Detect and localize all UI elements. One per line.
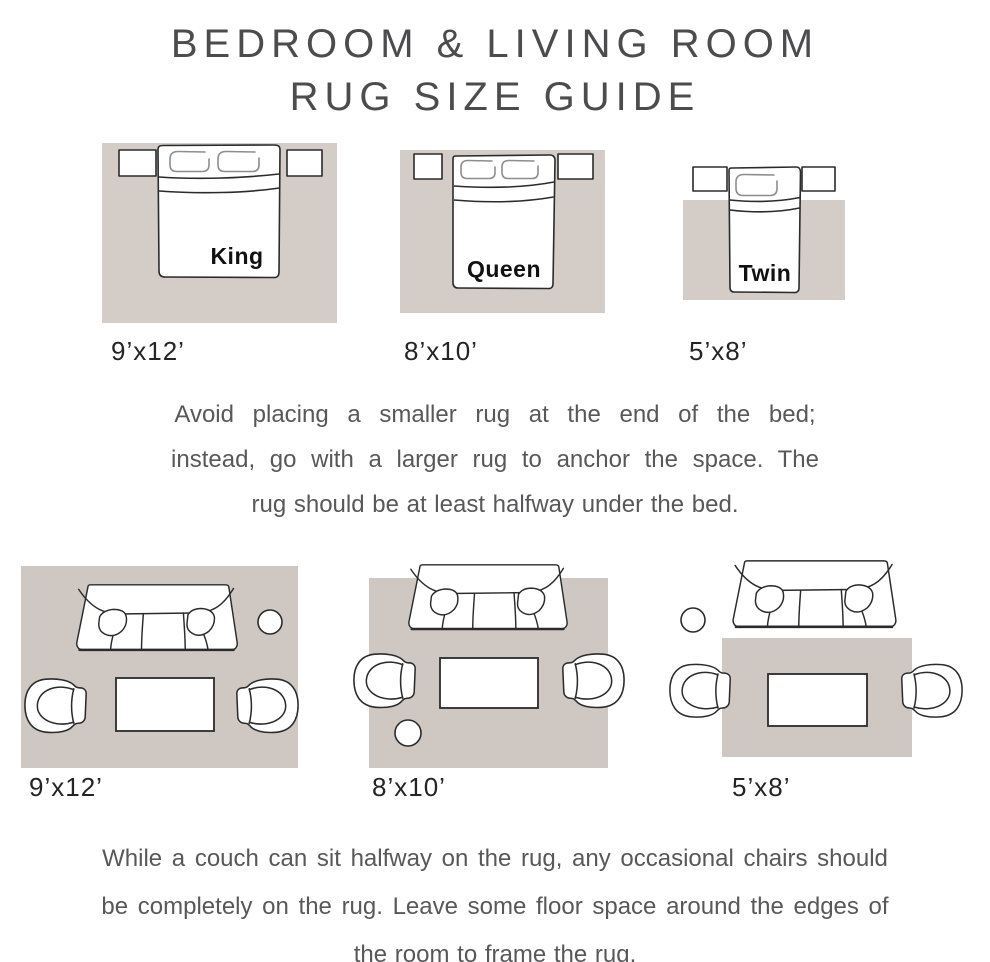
nightstand-icon [287, 150, 322, 176]
rug-dimension-label: 8’x10’ [404, 336, 478, 367]
rug-dimension-label: 9’x12’ [29, 772, 103, 803]
coffee-table-icon [116, 678, 214, 731]
side-table-icon [681, 608, 705, 632]
note-line: the room to frame the rug. [0, 931, 990, 962]
king-bedroom-diagram: King [90, 133, 350, 343]
page-title-line2: RUG SIZE GUIDE [0, 71, 990, 124]
nightstand-icon [802, 167, 835, 191]
note-line: be completely on the rug. Leave some flo… [0, 883, 990, 931]
side-table-icon [258, 610, 282, 634]
sofa-icon [409, 565, 567, 629]
nightstand-icon [119, 150, 156, 176]
rug-dimension-label: 9’x12’ [111, 336, 185, 367]
living-room-note: While a couch can sit halfway on the rug… [0, 835, 990, 962]
bed-size-name: King [210, 243, 263, 269]
rug-dimension-label: 5’x8’ [689, 336, 747, 367]
bed-size-name: Twin [739, 260, 792, 286]
note-line: Avoid placing a smaller rug at the end o… [0, 392, 990, 437]
living-room-diagram-8x10 [340, 550, 670, 780]
nightstand-icon [558, 154, 593, 179]
twin-bedroom-diagram: Twin [670, 133, 880, 343]
nightstand-icon [693, 167, 727, 191]
rug-size-guide-infographic: BEDROOM & LIVING ROOM RUG SIZE GUIDE Kin… [0, 0, 990, 962]
bedroom-note: Avoid placing a smaller rug at the end o… [0, 392, 990, 527]
note-line: While a couch can sit halfway on the rug… [0, 835, 990, 883]
page-title: BEDROOM & LIVING ROOM RUG SIZE GUIDE [0, 18, 990, 124]
coffee-table-icon [440, 658, 538, 708]
rug-dimension-label: 8’x10’ [372, 772, 446, 803]
bed-size-name: Queen [467, 256, 541, 282]
armchair-icon [670, 664, 730, 717]
living-room-diagram-5x8 [660, 550, 990, 780]
side-table-icon [395, 720, 421, 746]
nightstand-icon [414, 154, 442, 179]
note-line: rug should be at least halfway under the… [0, 482, 990, 527]
rug-dimension-label: 5’x8’ [732, 772, 790, 803]
page-title-line1: BEDROOM & LIVING ROOM [0, 18, 990, 71]
note-line: instead, go with a larger rug to anchor … [0, 437, 990, 482]
sofa-icon [77, 585, 238, 650]
coffee-table-icon [768, 674, 867, 726]
sofa-icon [733, 561, 896, 627]
queen-bedroom-diagram: Queen [395, 133, 625, 343]
living-room-diagram-9x12 [5, 550, 325, 780]
